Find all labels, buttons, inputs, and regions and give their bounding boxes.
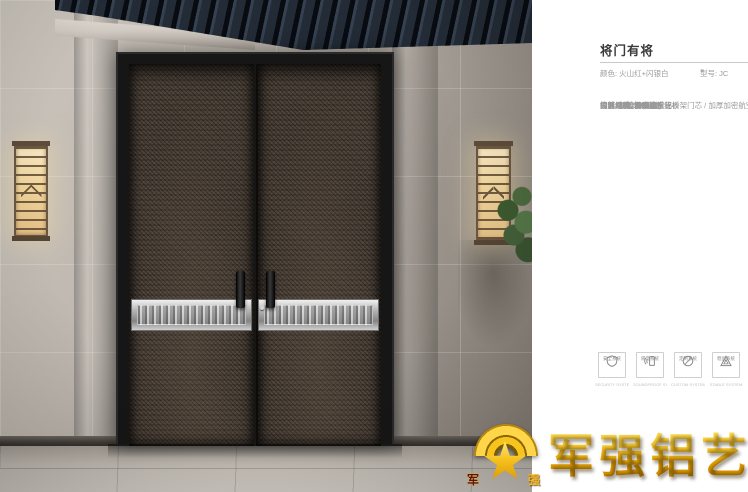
product-title: 将门有将 (600, 40, 748, 59)
lantern-lattice (21, 180, 42, 201)
emblem-char-right: 强 (528, 471, 540, 488)
feature-caption: CUSTOM SYSTEM (671, 382, 705, 387)
door-handle-left (236, 271, 245, 308)
feature-label: 隔音系统 (641, 355, 659, 362)
door-left-leaf (129, 64, 254, 446)
silver-carved-band-right (258, 299, 379, 331)
door-handle-right (266, 271, 275, 308)
feature-soundproof: 隔音系统 (636, 352, 664, 378)
catalog-page: 将门有将 颜色: 火山红+闪银白 ♥型号: JC 设计风格: 新中式 工艺结构:… (0, 0, 748, 492)
floor-seam (0, 468, 532, 469)
door-shadow (108, 444, 402, 458)
brand-name: 军强铝艺 (548, 420, 748, 492)
product-photo (0, 0, 532, 492)
feature-stable: 稳固系统 (712, 352, 740, 378)
spec-handle: 拉手: 精雕滑盖拉手 (600, 96, 664, 115)
feature-label: 稳固系统 (717, 355, 735, 362)
title-divider (600, 62, 748, 63)
feature-caption: SECURITY SYSTEM (595, 382, 629, 387)
feature-caption: STABLE SYSTEM (709, 382, 743, 387)
plant (492, 178, 532, 270)
wall-lantern-left (14, 145, 48, 237)
feature-label: 定制系统 (679, 355, 697, 362)
spec-panel: 将门有将 颜色: 火山红+闪银白 ♥型号: JC 设计风格: 新中式 工艺结构:… (532, 0, 748, 492)
feature-security: 安全系统 (598, 352, 626, 378)
brand-logo: 军 强 军强铝艺 (466, 420, 748, 492)
band-engraving (264, 305, 373, 325)
left-pilaster (74, 0, 118, 446)
feature-custom: 定制系统 (674, 352, 702, 378)
right-pilaster (392, 0, 438, 446)
feature-caption: SOUNDPROOF SYSTEM (633, 382, 667, 387)
door-right-leaf (256, 64, 381, 446)
emblem-char-left: 军 (467, 471, 479, 488)
silver-carved-band-left (131, 299, 252, 331)
logo-emblem: 军 强 (466, 420, 546, 492)
feature-badges: 安全系统 隔音系统 定制系统 (598, 352, 748, 392)
model-text: 型号: JC (700, 68, 728, 79)
lock-knob (260, 306, 264, 310)
band-engraving (137, 305, 246, 325)
color-label: 颜色: 火山红+闪银白 (600, 68, 700, 79)
feature-label: 安全系统 (603, 355, 621, 362)
